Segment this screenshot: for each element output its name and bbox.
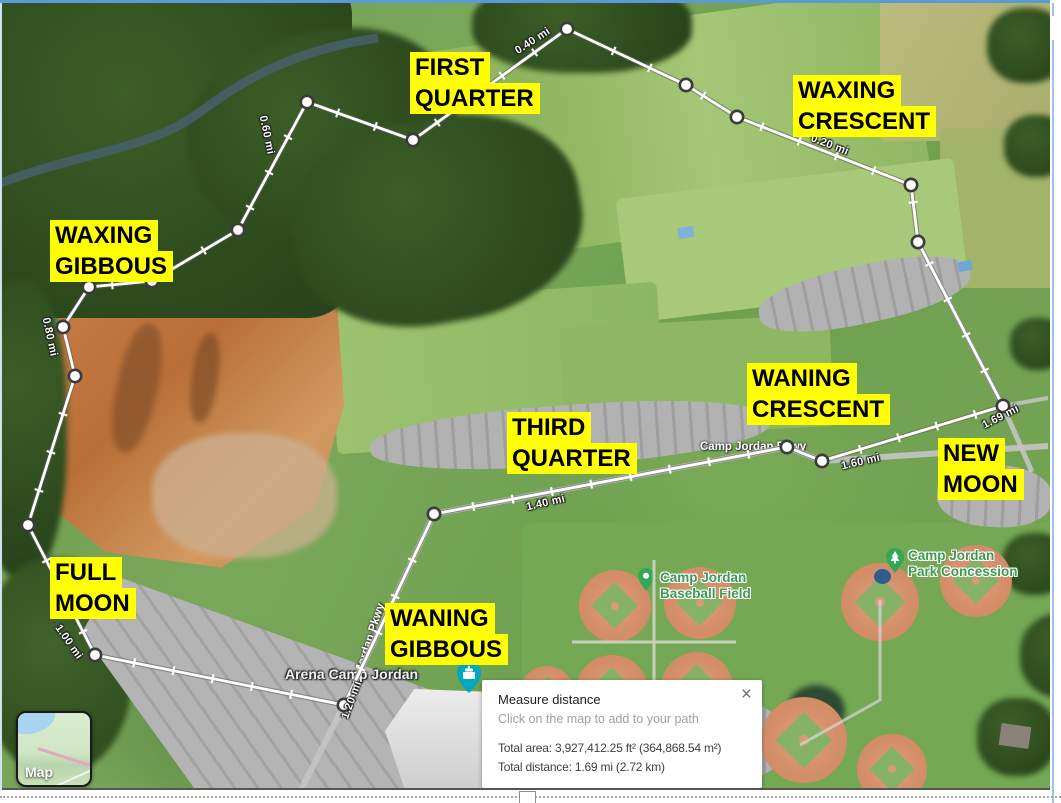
selection-border-right [1052, 40, 1054, 803]
total-distance: Total distance: 1.69 mi (2.72 km) [498, 758, 746, 777]
building [999, 723, 1032, 749]
annotation-waning-crescent: WANING CRESCENT [747, 363, 890, 425]
park-concession-pin-icon[interactable] [886, 548, 904, 579]
road-label: Camp Jordan Pkwy [700, 441, 806, 453]
annotation-first-quarter: FIRST QUARTER [410, 52, 540, 114]
trees [987, 8, 1050, 83]
place-label-baseball-field[interactable]: Camp Jordan Baseball Field [660, 570, 751, 602]
toggle-river-preview [16, 711, 59, 739]
annotation-waxing-gibbous: WAXING GIBBOUS [50, 220, 173, 282]
annotation-full-moon: FULL MOON [50, 557, 136, 619]
screenshot-stage: 0.20 mi 0.40 mi 0.60 mi 0.80 mi 1.00 mi … [0, 0, 1061, 803]
total-area: Total area: 3,927,412.25 ft² (364,868.54… [498, 739, 746, 758]
selection-border-right [1052, 3, 1054, 16]
place-label-park-concession[interactable]: Camp Jordan Park Concession [908, 548, 1018, 580]
trees [1010, 318, 1050, 370]
panel-hint: Click on the map to add to your path [498, 712, 746, 726]
annotation-third-quarter: THIRD QUARTER [507, 412, 637, 474]
annotation-waning-gibbous: WANING GIBBOUS [385, 603, 508, 665]
map-toggle-label: Map [25, 764, 53, 780]
annotation-new-moon: NEW MOON [938, 438, 1024, 500]
trees [1004, 115, 1050, 177]
close-icon[interactable]: × [741, 685, 752, 704]
arena-pin-icon[interactable] [456, 660, 482, 699]
selection-handle[interactable] [519, 791, 536, 803]
selection-border-left [0, 3, 2, 790]
selection-border-top [0, 0, 1061, 3]
panel-title: Measure distance [498, 692, 746, 707]
baseball-field-pin-icon[interactable] [638, 568, 654, 597]
annotation-waxing-crescent: WAXING CRESCENT [793, 75, 936, 137]
dirt-area-light [152, 433, 337, 558]
measure-distance-panel: × Measure distance Click on the map to a… [482, 680, 762, 788]
baseball-diamond [761, 697, 847, 783]
map-type-toggle[interactable]: Map [16, 711, 92, 787]
